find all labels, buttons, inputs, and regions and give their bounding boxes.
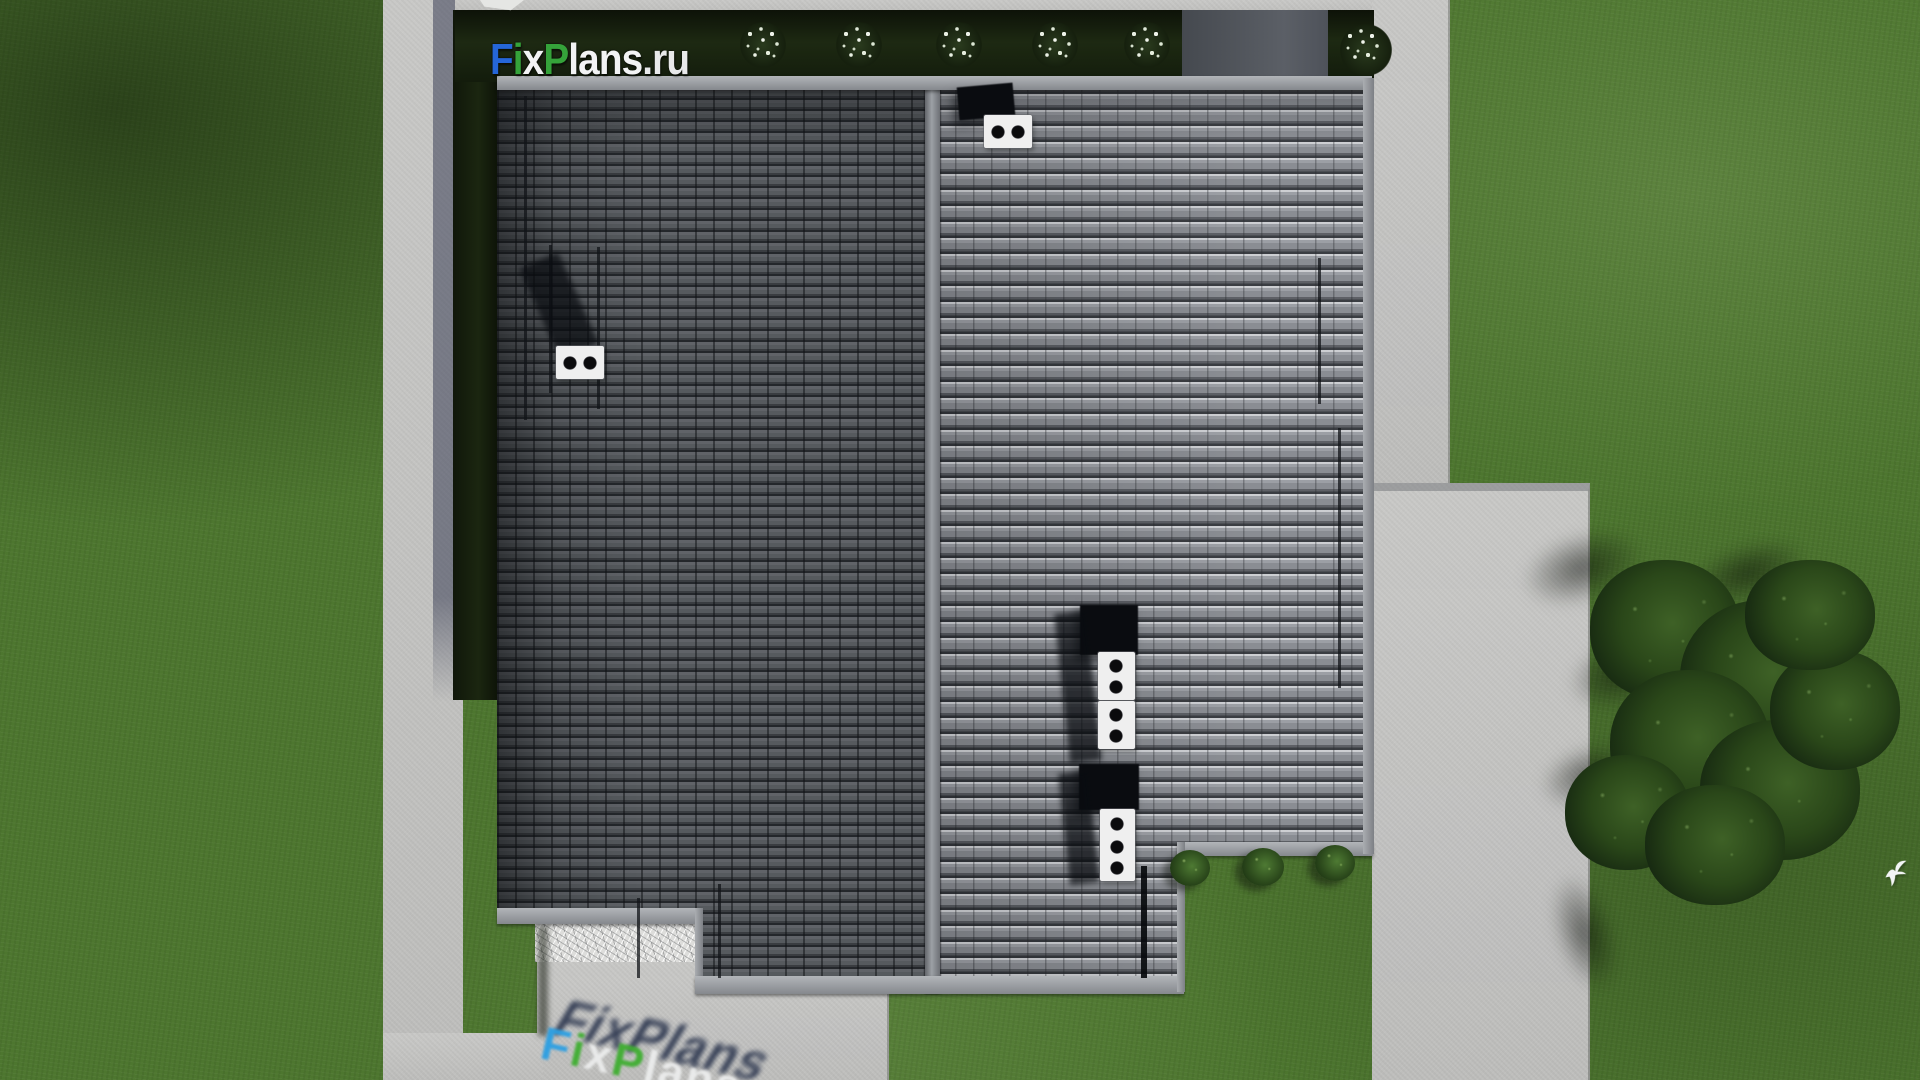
brand-letter: s: [622, 35, 643, 84]
brand-letter: .: [642, 35, 652, 84]
flower-bush: [1340, 24, 1392, 76]
tree-foliage: [1645, 785, 1785, 905]
path-right-strip: [1372, 0, 1450, 488]
roof-seam: [597, 247, 600, 409]
brand-letter: n: [599, 35, 622, 84]
bird-icon: [1879, 857, 1914, 891]
roof-edge-right: [1363, 78, 1374, 854]
flower-bush: [936, 22, 982, 68]
shaded-concrete-top: [1182, 10, 1328, 78]
roof-vent: [556, 346, 604, 379]
flower-bush: [740, 22, 786, 68]
small-bush: [1170, 850, 1210, 886]
brand-letter: r: [652, 35, 666, 84]
small-bush: [1315, 845, 1355, 881]
tree-foliage: [1745, 560, 1875, 670]
roof-seam: [718, 884, 721, 978]
roof-left-section: [497, 78, 937, 985]
brand-letter: i: [513, 35, 523, 84]
brand-watermark-top: FixPlans.ru: [490, 38, 689, 82]
hedge-left: [453, 10, 499, 700]
roof-gutter-b: [695, 976, 1184, 994]
brand-letter: u: [666, 35, 689, 84]
path-shadow: [433, 0, 455, 702]
flower-bush: [1124, 22, 1170, 68]
gravel-terrace: [535, 924, 697, 962]
roof-vent: [1098, 652, 1135, 700]
roof-pipe: [1141, 866, 1147, 978]
roof-seam: [524, 96, 527, 420]
brand-letter: F: [490, 35, 513, 84]
flower-bush: [836, 22, 882, 68]
brand-letter: x: [523, 35, 544, 84]
small-bush: [1242, 848, 1284, 886]
brand-letter: P: [543, 35, 568, 84]
brand-letter: l: [568, 35, 578, 84]
walkway-bottom-left: [383, 1033, 543, 1080]
roof-vent: [1100, 809, 1135, 881]
roof-seam: [637, 898, 640, 978]
roof-ridge: [925, 78, 940, 994]
roof-vent: [1098, 701, 1135, 749]
brand-letter: a: [578, 35, 599, 84]
roof-seam: [1338, 428, 1341, 688]
roof-seam: [1318, 258, 1321, 404]
aerial-roof-render: FixPlans.ru FixPlans FixPlans: [0, 0, 1920, 1080]
roof-gutter-a: [497, 908, 701, 924]
flower-bush: [1032, 22, 1078, 68]
roof-vent: [984, 115, 1032, 148]
